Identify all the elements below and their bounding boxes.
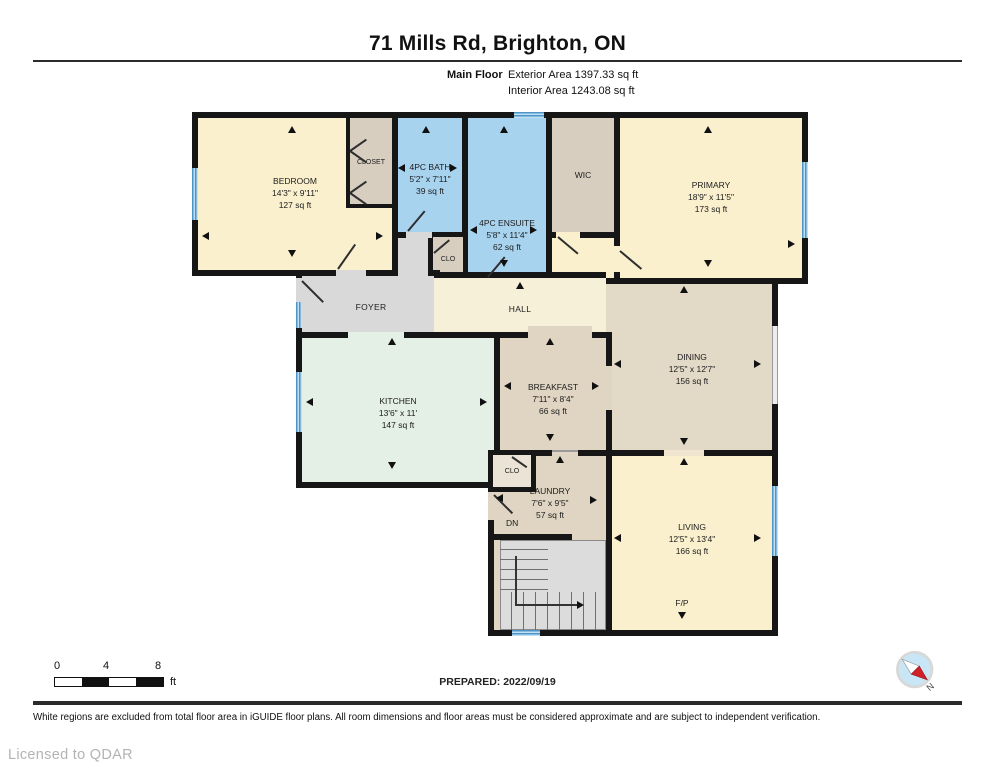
room-dims: 18'9" x 11'5" [620, 192, 802, 204]
dimension-arrow-icon [496, 494, 503, 502]
window [514, 112, 544, 118]
room-label: WIC [552, 170, 614, 182]
room-label: KITCHEN 13'6" x 11' 147 sq ft [302, 396, 494, 432]
room-name: FOYER [302, 302, 440, 314]
room-area: 39 sq ft [398, 186, 462, 198]
scale-tick-4: 4 [103, 660, 109, 672]
compass-icon: N [894, 650, 940, 696]
scale-tick-8: 8 [155, 660, 161, 672]
wall-opening [528, 326, 592, 338]
room-name: CLO [493, 467, 531, 477]
dimension-arrow-icon [500, 260, 508, 267]
dimension-arrow-icon [614, 360, 621, 368]
room-label: CLO [433, 255, 463, 265]
window [512, 630, 540, 636]
dimension-arrow-icon [422, 126, 430, 133]
window [296, 372, 302, 432]
room-area: 147 sq ft [302, 420, 494, 432]
compass-north-label: N [925, 681, 937, 693]
dimension-arrow-icon [376, 232, 383, 240]
dimension-arrow-icon [788, 240, 795, 248]
room-wic: WIC [546, 112, 620, 238]
stair-winders [500, 540, 548, 592]
exterior-area: Exterior Area 1397.33 sq ft [508, 69, 638, 81]
dimension-arrow-icon [614, 534, 621, 542]
room-name: BREAKFAST [500, 382, 606, 394]
fireplace-label: F/P [652, 598, 712, 608]
dimension-arrow-icon [530, 226, 537, 234]
footer-divider [33, 701, 962, 705]
room-dims: 12'5" x 12'7" [612, 364, 772, 376]
room-name: PRIMARY [620, 180, 802, 192]
stair-direction-line [515, 604, 579, 606]
floor-label: Main Floor [447, 69, 503, 81]
room-dining: DINING 12'5" x 12'7" 156 sq ft [606, 278, 778, 464]
window [772, 486, 778, 556]
stair-direction-arrow-icon [577, 601, 584, 609]
dimension-arrow-icon [504, 382, 511, 390]
door-opening [406, 232, 432, 238]
room-name: LIVING [612, 522, 772, 534]
dimension-arrow-icon [388, 338, 396, 345]
room-dims: 13'6" x 11' [302, 408, 494, 420]
room-bath: 4PC BATH 5'2" x 7'11" 39 sq ft [392, 112, 468, 238]
disclaimer-text: White regions are excluded from total fl… [33, 712, 958, 723]
dimension-arrow-icon [546, 434, 554, 441]
dimension-arrow-icon [288, 126, 296, 133]
dimension-arrow-icon [704, 260, 712, 267]
dimension-arrow-icon [680, 438, 688, 445]
dimension-arrow-icon [592, 382, 599, 390]
room-living: LIVING 12'5" x 13'4" 166 sq ft [606, 450, 778, 636]
room-kitchen: KITCHEN 13'6" x 11' 147 sq ft [296, 332, 500, 488]
stairs-down-label: DN [506, 518, 518, 528]
room-name: DINING [612, 352, 772, 364]
door-opening [336, 270, 366, 276]
room-label: LIVING 12'5" x 13'4" 166 sq ft [612, 522, 772, 558]
foyer-floor-extension [398, 238, 428, 276]
room-label: FOYER [302, 302, 440, 314]
room-area: 173 sq ft [620, 204, 802, 216]
dimension-arrow-icon [546, 338, 554, 345]
room-label: 4PC ENSUITE 5'8" x 11'4" 62 sq ft [468, 218, 546, 254]
dimension-arrow-icon [754, 360, 761, 368]
dimension-arrow-icon [680, 286, 688, 293]
room-dims: 7'11" x 8'4" [500, 394, 606, 406]
dimension-arrow-icon [680, 458, 688, 465]
room-ensuite: 4PC ENSUITE 5'8" x 11'4" 62 sq ft [462, 112, 552, 284]
room-name: HALL [434, 304, 606, 316]
room-dims: 12'5" x 13'4" [612, 534, 772, 546]
wall-opening [606, 366, 612, 410]
wall-opening [606, 284, 612, 332]
dimension-arrow-icon [398, 164, 405, 172]
dimension-arrow-icon [202, 232, 209, 240]
room-label: CLO [493, 467, 531, 477]
room-name: KITCHEN [302, 396, 494, 408]
room-foyer: FOYER [296, 270, 440, 338]
room-label: PRIMARY 18'9" x 11'5" 173 sq ft [620, 180, 802, 216]
dimension-arrow-icon [288, 250, 296, 257]
room-label: HALL [434, 304, 606, 316]
wall-opening [664, 450, 704, 456]
dimension-arrow-icon [470, 226, 477, 234]
dimension-arrow-icon [556, 456, 564, 463]
stair-direction-line [515, 556, 517, 606]
window [802, 162, 808, 238]
room-primary: PRIMARY 18'9" x 11'5" 173 sq ft [614, 112, 808, 284]
dimension-arrow-icon [500, 126, 508, 133]
room-area: 62 sq ft [468, 242, 546, 254]
prepared-date: PREPARED: 2022/09/19 [0, 676, 995, 688]
room-dims: 5'2" x 7'11" [398, 174, 462, 186]
room-label: BREAKFAST 7'11" x 8'4" 66 sq ft [500, 382, 606, 418]
room-name: CLOSET [350, 158, 392, 168]
dimension-arrow-icon [590, 496, 597, 504]
dimension-arrow-icon [450, 164, 457, 172]
room-label: DINING 12'5" x 12'7" 156 sq ft [612, 352, 772, 388]
dimension-arrow-icon [388, 462, 396, 469]
room-area: 66 sq ft [500, 406, 606, 418]
dimension-arrow-icon [516, 282, 524, 289]
room-name: WIC [552, 170, 614, 182]
dimension-arrow-icon [306, 398, 313, 406]
window [296, 302, 302, 328]
room-name: CLO [433, 255, 463, 265]
dimension-arrow-icon [480, 398, 487, 406]
sliding-door [772, 326, 778, 404]
room-area: 166 sq ft [612, 546, 772, 558]
floor-plan-page: 71 Mills Rd, Brighton, ON Main Floor Ext… [0, 0, 995, 768]
header-divider [33, 60, 962, 62]
interior-area: Interior Area 1243.08 sq ft [508, 85, 635, 97]
door-opening [486, 278, 512, 284]
room-area: 156 sq ft [612, 376, 772, 388]
license-text: Licensed to QDAR [8, 747, 133, 763]
dimension-arrow-icon [704, 126, 712, 133]
dimension-arrow-icon [754, 534, 761, 542]
window [192, 168, 198, 220]
room-breakfast: BREAKFAST 7'11" x 8'4" 66 sq ft [494, 332, 612, 462]
dimension-arrow-icon [678, 612, 686, 619]
scale-tick-0: 0 [54, 660, 60, 672]
page-title: 71 Mills Rd, Brighton, ON [0, 32, 995, 56]
room-label: CLOSET [350, 158, 392, 168]
